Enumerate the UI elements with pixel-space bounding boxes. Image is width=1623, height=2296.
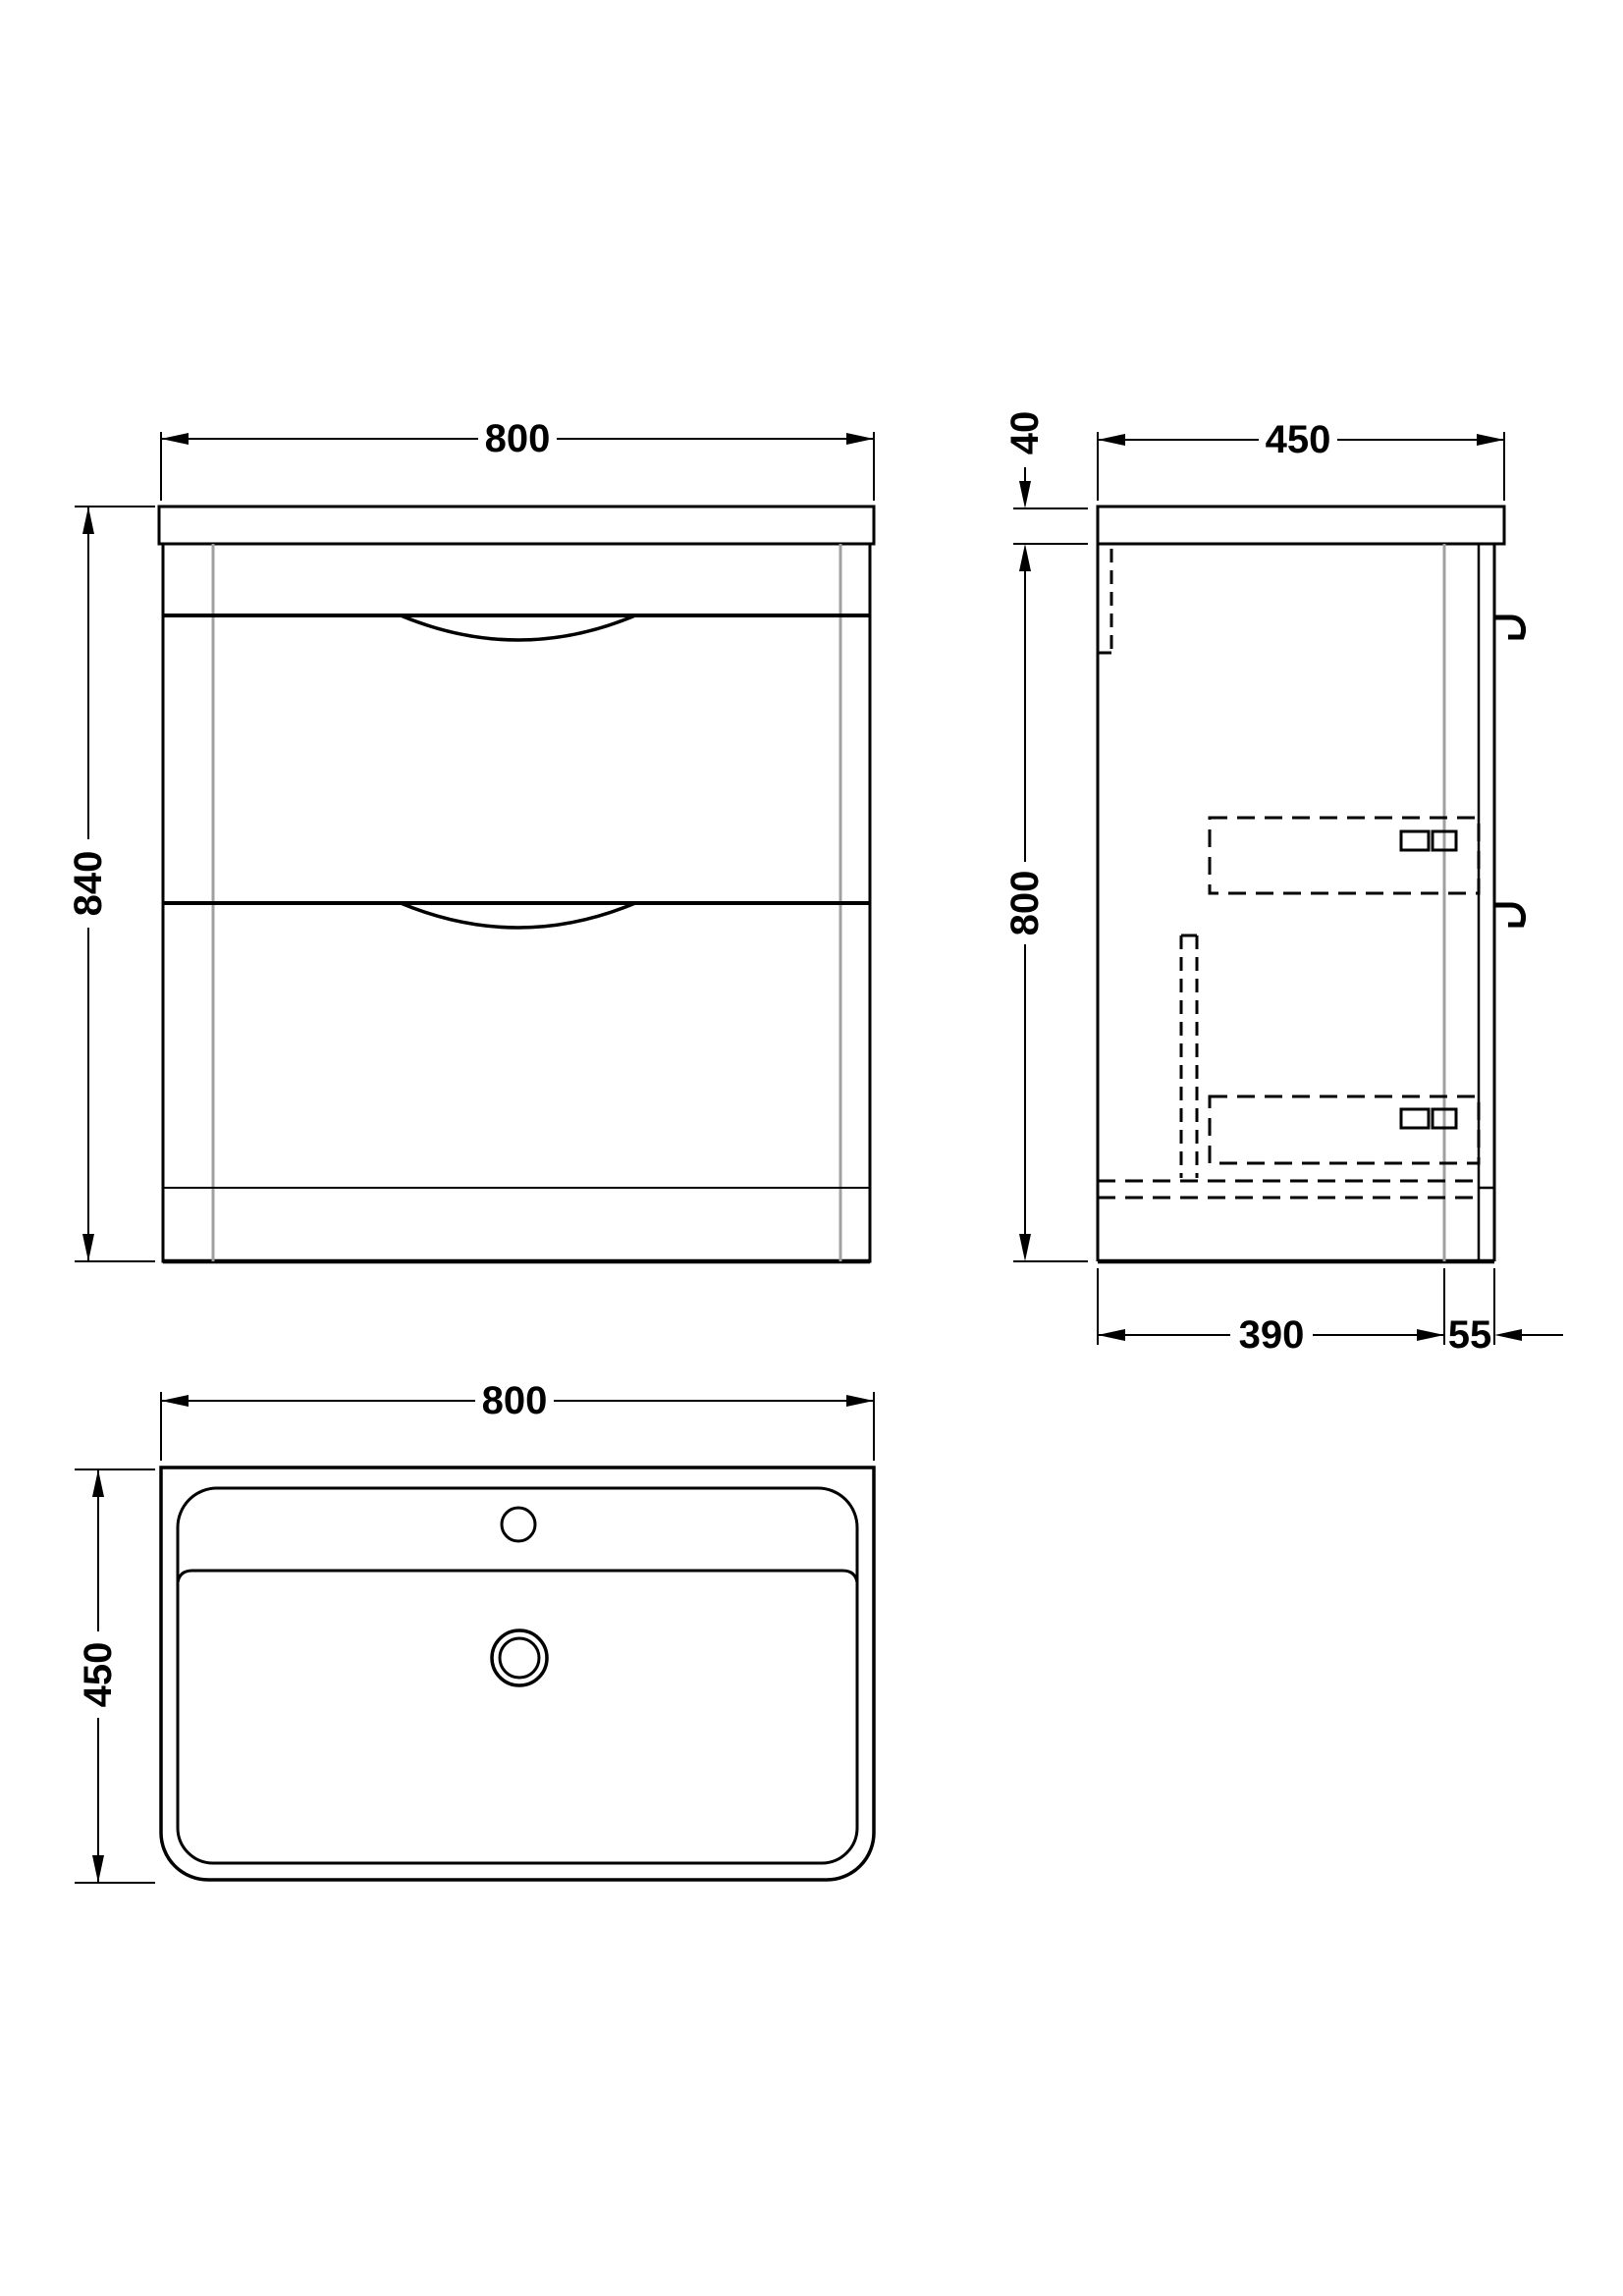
side-countertop — [1098, 507, 1504, 544]
plan-width-dimension: 800 — [161, 1379, 874, 1461]
front-height-label: 840 — [67, 851, 110, 917]
front-width-dimension: 800 — [161, 417, 874, 501]
plan-depth-label: 450 — [77, 1642, 120, 1708]
front-height-dimension: 840 — [67, 507, 155, 1261]
front-countertop — [159, 507, 874, 544]
vanity-unit-technical-drawing: 800 840 — [0, 0, 1623, 2296]
front-elevation-view: 800 840 — [67, 417, 874, 1261]
basin-inner-edge — [178, 1488, 857, 1863]
front-drawer1-handle-recess-arc — [401, 615, 635, 640]
front-width-label: 800 — [485, 417, 551, 460]
side-internal-depth-label: 390 — [1239, 1313, 1305, 1357]
side-bottom-dimensions: 390 55 — [1098, 1268, 1563, 1357]
technical-drawing-canvas: 800 840 — [0, 0, 1623, 2296]
side-elevation-view: 450 40 800 — [1003, 411, 1563, 1357]
side-depth-label: 450 — [1266, 418, 1331, 461]
tap-hole — [502, 1508, 535, 1541]
side-cabinet-height-label: 800 — [1003, 871, 1047, 936]
basin-plan-view: 800 450 — [75, 1379, 874, 1883]
side-depth-dimension: 450 — [1098, 418, 1504, 501]
plan-width-label: 800 — [482, 1379, 548, 1422]
basin-outer-rim — [161, 1468, 874, 1880]
side-drawer1-box-hidden — [1210, 818, 1479, 893]
side-drawer1-runner-bracket — [1401, 831, 1429, 850]
front-drawer2-handle-recess-arc — [401, 903, 635, 928]
side-cabinet-height-dimension: 800 — [1003, 544, 1088, 1261]
plan-depth-dimension: 450 — [75, 1469, 155, 1883]
side-waste-pipe-hidden — [1181, 935, 1197, 1178]
side-worktop-thickness-label: 40 — [1003, 411, 1047, 455]
side-drawer1-handle — [1495, 617, 1524, 637]
side-worktop-thickness-dimension: 40 — [1003, 411, 1088, 544]
side-drawer2-runner-bracket — [1401, 1109, 1429, 1128]
side-drawer2-box-hidden — [1210, 1096, 1479, 1163]
waste-outlet-inner — [500, 1638, 539, 1678]
basin-shelf-edge — [178, 1571, 857, 1582]
side-front-depth-label: 55 — [1448, 1313, 1492, 1357]
side-drawer2-handle — [1495, 905, 1524, 925]
